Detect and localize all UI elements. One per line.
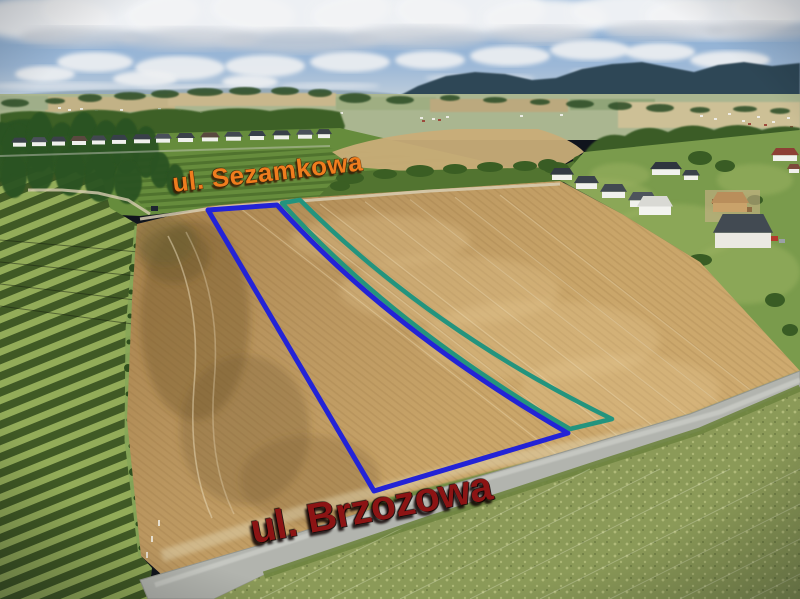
aerial-photo: ul. Sezamkowa ul. Brzozowa bbox=[0, 0, 800, 599]
